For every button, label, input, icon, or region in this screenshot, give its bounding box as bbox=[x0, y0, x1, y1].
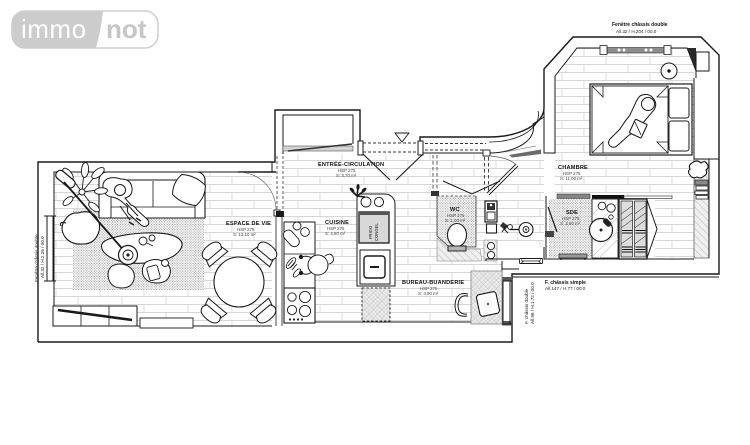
svg-text:ENTRÉE-CIRCULATION: ENTRÉE-CIRCULATION bbox=[318, 160, 384, 168]
svg-text:not: not bbox=[106, 14, 147, 44]
svg-text:S: 1,00 m²: S: 1,00 m² bbox=[445, 218, 466, 223]
svg-text:S: 4,50 m²: S: 4,50 m² bbox=[325, 231, 346, 236]
svg-text:S: 13,10 m²: S: 13,10 m² bbox=[233, 232, 256, 237]
svg-text:S: 2,80 m²: S: 2,80 m² bbox=[560, 221, 581, 226]
svg-text:Fenêtre châssis double: Fenêtre châssis double bbox=[612, 22, 668, 28]
svg-text:All.32 / H.204 / 00.0: All.32 / H.204 / 00.0 bbox=[616, 29, 657, 34]
svg-text:CONGEL: CONGEL bbox=[374, 223, 379, 241]
svg-text:FRIGO: FRIGO bbox=[368, 225, 373, 239]
svg-text:immo: immo bbox=[21, 14, 87, 44]
svg-text:S: 11,00 m²: S: 11,00 m² bbox=[560, 176, 583, 181]
svg-text:S: 3,90 m²: S: 3,90 m² bbox=[418, 291, 439, 296]
svg-text:S: 3,70 m²: S: 3,70 m² bbox=[336, 173, 357, 178]
svg-text:F. châssis double: F. châssis double bbox=[524, 288, 529, 324]
svg-text:All.32 / H.2.26 / 00.0: All.32 / H.2.26 / 00.0 bbox=[40, 236, 45, 278]
svg-text:All.96 / H.1.72 / 00.0: All.96 / H.1.72 / 00.0 bbox=[530, 282, 535, 324]
svg-text:Fenêtre châssis double: Fenêtre châssis double bbox=[34, 234, 39, 282]
svg-text:All.147 / H.77 / 00.0: All.147 / H.77 / 00.0 bbox=[545, 286, 586, 291]
